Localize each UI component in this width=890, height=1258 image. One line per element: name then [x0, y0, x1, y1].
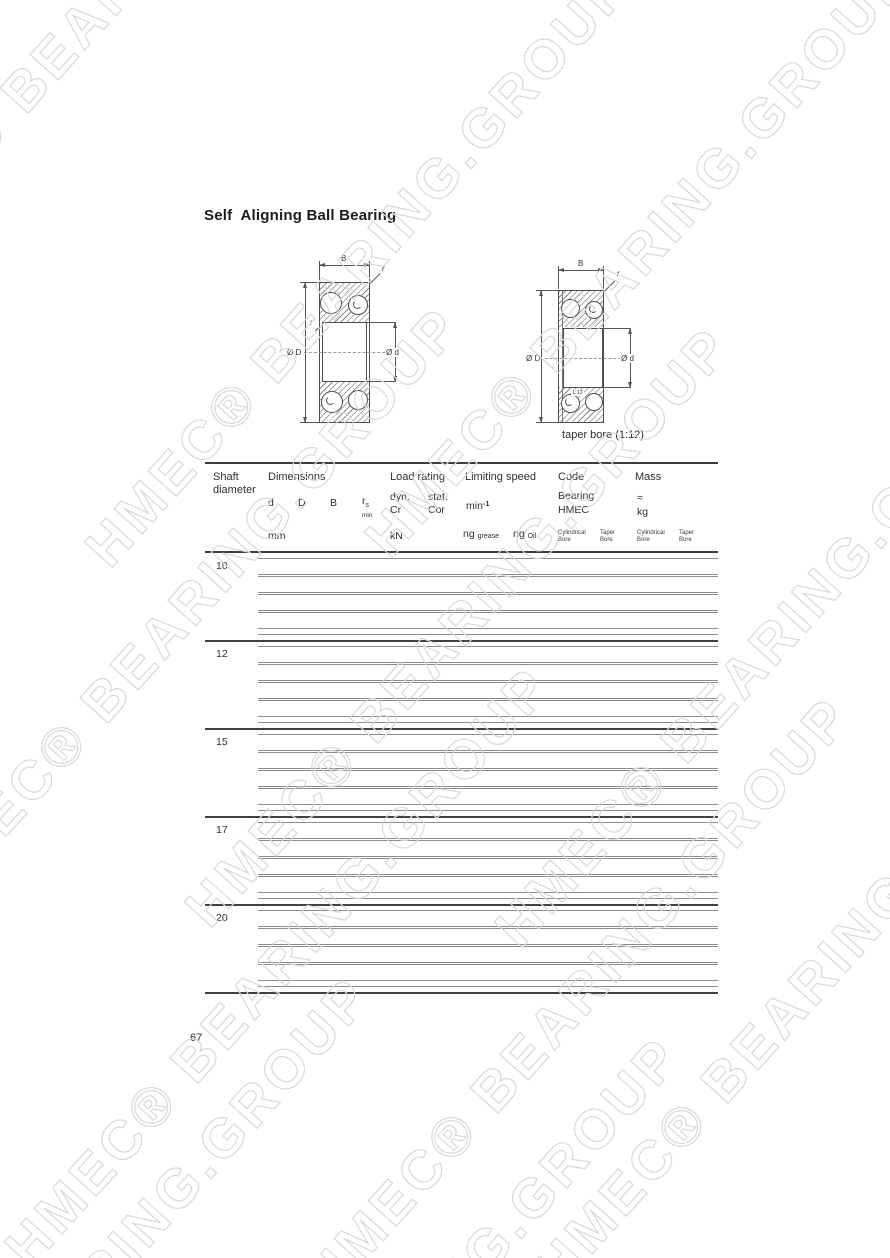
- cell-mass-cylindrical: [635, 841, 678, 856]
- cell-rs-min: [360, 577, 390, 592]
- cell-dyn-cr: [390, 683, 433, 698]
- cell-mass-taper: [678, 841, 708, 856]
- cell-code-cylindrical: [558, 735, 600, 750]
- cell-code-taper: [600, 823, 635, 838]
- retainer-curl: [326, 396, 335, 405]
- cell-B: [316, 947, 360, 962]
- cell-D: [296, 595, 316, 610]
- cell-speed-oil: [515, 595, 558, 610]
- arrow-icon: [539, 417, 543, 423]
- label-r-left: r: [309, 318, 314, 327]
- cell-dyn-cr: [390, 701, 433, 716]
- cell-rs-min: [360, 613, 390, 628]
- cell-speed-oil: [515, 613, 558, 628]
- ball: [585, 393, 603, 411]
- header-bearing-hmec: BearingHMEC: [558, 489, 594, 517]
- cell-dyn-cr: [390, 753, 433, 768]
- cell-d: [268, 577, 296, 592]
- cell-B: [316, 595, 360, 610]
- cell-speed-oil: [515, 647, 558, 662]
- cell-code-taper: [600, 877, 635, 892]
- cell-dyn-cr: [390, 823, 433, 838]
- cell-mass-taper: [678, 771, 708, 786]
- dim-line-b: [319, 265, 370, 266]
- label-id: Ø d: [385, 348, 400, 357]
- arrow-icon: [393, 376, 397, 382]
- cell-speed-grease: [465, 789, 515, 804]
- cell-mass-taper: [678, 753, 708, 768]
- label-r-top: r: [381, 264, 386, 273]
- cell-B: [316, 823, 360, 838]
- cell-rs-min: [360, 823, 390, 838]
- bearing-diagram-cylindrical: B r r Ø D Ø d: [285, 252, 435, 442]
- cell-mass-taper: [678, 823, 708, 838]
- cell-speed-oil: [515, 929, 558, 944]
- cell-rs-min: [360, 877, 390, 892]
- watermark-text: HMEC® BEARING.GROUP: [0, 964, 383, 1258]
- cell-dyn-cr: [390, 929, 433, 944]
- cell-B: [316, 577, 360, 592]
- header-load-rating: Load rating: [390, 471, 445, 484]
- cell-stat-cor: [433, 929, 465, 944]
- cell-mass-taper: [678, 665, 708, 680]
- shaft-diameter-group: 15: [205, 734, 718, 818]
- cell-B: [316, 841, 360, 856]
- cell-dyn-cr: [390, 647, 433, 662]
- cell-speed-grease: [465, 577, 515, 592]
- table-row: [258, 682, 718, 699]
- cell-speed-grease: [465, 929, 515, 944]
- table-body: 10: [205, 553, 718, 994]
- cell-speed-grease: [465, 753, 515, 768]
- cell-dyn-cr: [390, 841, 433, 856]
- cell-code-cylindrical: [558, 823, 600, 838]
- bearing-spec-table: Shaft diameter Dimensions Load rating Li…: [205, 462, 718, 998]
- cell-speed-oil: [515, 947, 558, 962]
- cell-D: [296, 701, 316, 716]
- cell-dyn-cr: [390, 559, 433, 574]
- table-row: [258, 612, 718, 629]
- cell-B: [316, 701, 360, 716]
- cell-dyn-cr: [390, 965, 433, 980]
- cell-speed-grease: [465, 911, 515, 926]
- shaft-diameter-group: 17: [205, 822, 718, 906]
- cell-D: [296, 859, 316, 874]
- shaft-diameter-label: 17: [205, 822, 258, 899]
- cell-D: [296, 877, 316, 892]
- cell-mass-cylindrical: [635, 823, 678, 838]
- cell-d: [268, 613, 296, 628]
- cell-B: [316, 753, 360, 768]
- cell-D: [296, 665, 316, 680]
- cell-code-taper: [600, 577, 635, 592]
- cell-speed-grease: [465, 683, 515, 698]
- table-row: [258, 576, 718, 593]
- cell-mass-taper: [678, 613, 708, 628]
- cell-mass-cylindrical: [635, 789, 678, 804]
- cell-code-cylindrical: [558, 947, 600, 962]
- cell-mass-taper: [678, 947, 708, 962]
- cell-mass-cylindrical: [635, 683, 678, 698]
- cell-stat-cor: [433, 595, 465, 610]
- cell-dyn-cr: [390, 771, 433, 786]
- table-row: [258, 752, 718, 769]
- cell-code-cylindrical: [558, 559, 600, 574]
- cell-speed-oil: [515, 859, 558, 874]
- cell-mass-cylindrical: [635, 559, 678, 574]
- cell-D: [296, 647, 316, 662]
- arrow-icon: [598, 268, 604, 272]
- cell-D: [296, 911, 316, 926]
- cell-mass-taper: [678, 911, 708, 926]
- cell-d: [268, 701, 296, 716]
- header-shaft-diameter: Shaft diameter: [213, 471, 256, 497]
- cell-stat-cor: [433, 911, 465, 926]
- cell-B: [316, 859, 360, 874]
- cell-code-cylindrical: [558, 683, 600, 698]
- cell-d: [268, 947, 296, 962]
- cell-speed-oil: [515, 823, 558, 838]
- cell-speed-grease: [465, 877, 515, 892]
- cell-rs-min: [360, 683, 390, 698]
- cell-dyn-cr: [390, 665, 433, 680]
- cell-speed-oil: [515, 911, 558, 926]
- cell-mass-taper: [678, 789, 708, 804]
- shaft-diameter-label: 10: [205, 558, 258, 635]
- cell-speed-oil: [515, 577, 558, 592]
- cell-mass-taper: [678, 701, 708, 716]
- cell-B: [316, 683, 360, 698]
- shaft-diameter-label: 12: [205, 646, 258, 723]
- cell-stat-cor: [433, 877, 465, 892]
- cell-d: [268, 647, 296, 662]
- label-od: Ø D: [286, 348, 302, 357]
- table-row: [258, 946, 718, 963]
- cell-d: [268, 789, 296, 804]
- cell-speed-grease: [465, 947, 515, 962]
- header-rs-min: rsmin: [362, 495, 372, 519]
- cell-speed-grease: [465, 771, 515, 786]
- cell-rs-min: [360, 789, 390, 804]
- cell-rs-min: [360, 841, 390, 856]
- table-row: [258, 664, 718, 681]
- table-row: [258, 822, 718, 839]
- cell-mass-cylindrical: [635, 613, 678, 628]
- cell-d: [268, 877, 296, 892]
- label-od: Ø D: [525, 354, 541, 363]
- arrow-icon: [628, 382, 632, 388]
- cell-mass-cylindrical: [635, 735, 678, 750]
- cell-mass-cylindrical: [635, 911, 678, 926]
- cell-code-cylindrical: [558, 665, 600, 680]
- cell-D: [296, 683, 316, 698]
- cell-rs-min: [360, 929, 390, 944]
- shaft-diameter-group: 20: [205, 910, 718, 994]
- cell-D: [296, 613, 316, 628]
- header-limiting-speed: Limiting speed: [465, 471, 536, 484]
- cell-d: [268, 683, 296, 698]
- table-row: [258, 840, 718, 857]
- arrow-icon: [364, 263, 370, 267]
- cell-mass-cylindrical: [635, 947, 678, 962]
- cell-speed-oil: [515, 559, 558, 574]
- cell-stat-cor: [433, 647, 465, 662]
- cell-speed-oil: [515, 701, 558, 716]
- cell-d: [268, 929, 296, 944]
- cell-stat-cor: [433, 613, 465, 628]
- cell-speed-grease: [465, 701, 515, 716]
- cell-stat-cor: [433, 965, 465, 980]
- table-row: [258, 858, 718, 875]
- cell-code-cylindrical: [558, 753, 600, 768]
- cell-speed-oil: [515, 665, 558, 680]
- page-title: Self Aligning Ball Bearing: [204, 207, 396, 224]
- catalog-page: Self Aligning Ball Bearing 67 B r r Ø D: [0, 0, 890, 1258]
- retainer-curl: [589, 305, 597, 313]
- cell-code-taper: [600, 753, 635, 768]
- leader-line: [370, 273, 381, 284]
- cell-stat-cor: [433, 577, 465, 592]
- cell-B: [316, 613, 360, 628]
- cell-stat-cor: [433, 753, 465, 768]
- cell-code-taper: [600, 559, 635, 574]
- cell-mass-cylindrical: [635, 753, 678, 768]
- cell-code-cylindrical: [558, 965, 600, 980]
- cell-code-taper: [600, 929, 635, 944]
- cell-speed-oil: [515, 753, 558, 768]
- cell-mass-taper: [678, 929, 708, 944]
- table-header: Shaft diameter Dimensions Load rating Li…: [205, 462, 718, 553]
- cell-speed-grease: [465, 735, 515, 750]
- cell-D: [296, 735, 316, 750]
- cell-B: [316, 665, 360, 680]
- cell-speed-oil: [515, 789, 558, 804]
- cell-B: [316, 877, 360, 892]
- ball: [348, 390, 368, 410]
- cell-speed-oil: [515, 683, 558, 698]
- cell-speed-grease: [465, 841, 515, 856]
- cell-code-taper: [600, 911, 635, 926]
- header-code-taper-bore: TaperBore: [600, 530, 615, 543]
- cell-dyn-cr: [390, 595, 433, 610]
- cell-D: [296, 947, 316, 962]
- cell-stat-cor: [433, 683, 465, 698]
- cell-stat-cor: [433, 841, 465, 856]
- cell-mass-taper: [678, 595, 708, 610]
- cell-stat-cor: [433, 665, 465, 680]
- header-code-cylindrical-bore: CylindricalBore: [558, 530, 586, 543]
- cell-mass-cylindrical: [635, 595, 678, 610]
- cell-stat-cor: [433, 701, 465, 716]
- cell-dyn-cr: [390, 735, 433, 750]
- header-mass-taper-bore: TaperBore: [679, 530, 694, 543]
- cell-d: [268, 965, 296, 980]
- taper-bore-caption: taper bore (1:12): [538, 429, 668, 441]
- cell-B: [316, 771, 360, 786]
- table-row: [258, 734, 718, 751]
- retainer-curl: [353, 300, 362, 309]
- cell-code-taper: [600, 735, 635, 750]
- bearing-diagram-taper: 1:12 B r Ø D Ø d: [525, 252, 665, 437]
- cell-speed-oil: [515, 735, 558, 750]
- arrow-icon: [558, 268, 564, 272]
- cell-D: [296, 841, 316, 856]
- cell-mass-cylindrical: [635, 877, 678, 892]
- cell-speed-grease: [465, 647, 515, 662]
- cell-code-taper: [600, 701, 635, 716]
- header-mm: mm: [268, 530, 286, 543]
- watermark-text: HMEC® BEARING.GROUP: [783, 884, 890, 1258]
- cell-dyn-cr: [390, 947, 433, 962]
- cell-speed-grease: [465, 965, 515, 980]
- cell-mass-taper: [678, 577, 708, 592]
- table-row: [258, 928, 718, 945]
- cell-D: [296, 577, 316, 592]
- table-row: [258, 594, 718, 611]
- cell-code-cylindrical: [558, 701, 600, 716]
- cell-code-taper: [600, 665, 635, 680]
- header-dimensions: Dimensions: [268, 471, 325, 484]
- cell-d: [268, 595, 296, 610]
- cell-B: [316, 929, 360, 944]
- cell-mass-taper: [678, 559, 708, 574]
- cell-rs-min: [360, 559, 390, 574]
- arrow-icon: [303, 282, 307, 288]
- shaft-diameter-label: 20: [205, 910, 258, 987]
- cell-code-cylindrical: [558, 877, 600, 892]
- cell-code-taper: [600, 595, 635, 610]
- cell-dyn-cr: [390, 911, 433, 926]
- cell-code-taper: [600, 841, 635, 856]
- table-row: [258, 700, 718, 717]
- cell-stat-cor: [433, 947, 465, 962]
- cell-stat-cor: [433, 559, 465, 574]
- cell-rs-min: [360, 735, 390, 750]
- cell-code-cylindrical: [558, 929, 600, 944]
- cell-mass-cylindrical: [635, 771, 678, 786]
- cell-d: [268, 735, 296, 750]
- cell-D: [296, 771, 316, 786]
- cell-D: [296, 965, 316, 980]
- cell-mass-cylindrical: [635, 701, 678, 716]
- cell-rs-min: [360, 859, 390, 874]
- cell-B: [316, 735, 360, 750]
- cell-rs-min: [360, 595, 390, 610]
- cell-code-taper: [600, 647, 635, 662]
- cell-B: [316, 789, 360, 804]
- retainer-curl: [565, 398, 573, 406]
- table-row: [258, 964, 718, 981]
- arrow-icon: [319, 263, 325, 267]
- header-approx-kg: ≈kg: [637, 491, 648, 519]
- cell-speed-grease: [465, 859, 515, 874]
- shaft-diameter-group: 10: [205, 558, 718, 642]
- cell-speed-grease: [465, 823, 515, 838]
- cell-code-cylindrical: [558, 911, 600, 926]
- arrow-icon: [393, 322, 397, 328]
- cell-rs-min: [360, 911, 390, 926]
- header-code: Code: [558, 471, 584, 484]
- cell-stat-cor: [433, 789, 465, 804]
- cell-stat-cor: [433, 859, 465, 874]
- cell-code-taper: [600, 613, 635, 628]
- cell-D: [296, 929, 316, 944]
- ball: [561, 299, 580, 318]
- cell-D: [296, 753, 316, 768]
- header-ng-grease: ng grease: [463, 528, 499, 543]
- table-row: [258, 876, 718, 893]
- cell-code-cylindrical: [558, 595, 600, 610]
- cell-mass-taper: [678, 877, 708, 892]
- cell-code-cylindrical: [558, 841, 600, 856]
- label-b: B: [340, 254, 347, 263]
- label-b: B: [577, 259, 584, 268]
- table-row: [258, 646, 718, 663]
- cell-d: [268, 823, 296, 838]
- label-r: r: [616, 269, 621, 278]
- leader-line: [604, 280, 615, 291]
- cell-code-cylindrical: [558, 789, 600, 804]
- cell-speed-oil: [515, 771, 558, 786]
- cell-rs-min: [360, 665, 390, 680]
- cell-speed-oil: [515, 965, 558, 980]
- cell-dyn-cr: [390, 877, 433, 892]
- arrow-icon: [303, 417, 307, 423]
- cell-speed-grease: [465, 665, 515, 680]
- cell-mass-taper: [678, 859, 708, 874]
- page-number: 67: [190, 1032, 202, 1044]
- cell-code-cylindrical: [558, 577, 600, 592]
- cell-stat-cor: [433, 823, 465, 838]
- table-row: [258, 770, 718, 787]
- cell-mass-cylindrical: [635, 965, 678, 980]
- watermark-text: HMEC® BEARING.GROUP: [123, 1024, 693, 1258]
- cell-mass-cylindrical: [635, 647, 678, 662]
- cell-code-taper: [600, 947, 635, 962]
- cell-mass-cylindrical: [635, 859, 678, 874]
- header-kn: kN: [390, 530, 403, 543]
- center-line: [299, 352, 395, 353]
- cell-d: [268, 841, 296, 856]
- header-mass-cylindrical-bore: CylindricalBore: [637, 530, 665, 543]
- cell-mass-cylindrical: [635, 665, 678, 680]
- cell-d: [268, 911, 296, 926]
- cell-code-cylindrical: [558, 613, 600, 628]
- header-dyn-cr: dyn.Cr: [390, 491, 410, 517]
- cell-rs-min: [360, 701, 390, 716]
- cell-dyn-cr: [390, 789, 433, 804]
- cell-mass-taper: [678, 647, 708, 662]
- cell-code-taper: [600, 965, 635, 980]
- cell-dyn-cr: [390, 859, 433, 874]
- cell-code-taper: [600, 859, 635, 874]
- arrow-icon: [628, 328, 632, 334]
- center-line: [535, 358, 631, 359]
- cell-mass-taper: [678, 735, 708, 750]
- cell-D: [296, 823, 316, 838]
- cell-mass-taper: [678, 965, 708, 980]
- header-ng-oil: ng Oil: [513, 528, 536, 543]
- cell-mass-cylindrical: [635, 929, 678, 944]
- cell-D: [296, 559, 316, 574]
- cell-code-cylindrical: [558, 859, 600, 874]
- cell-B: [316, 965, 360, 980]
- cell-speed-grease: [465, 613, 515, 628]
- cell-mass-taper: [678, 683, 708, 698]
- cell-code-cylindrical: [558, 771, 600, 786]
- cell-d: [268, 753, 296, 768]
- ball: [320, 292, 342, 314]
